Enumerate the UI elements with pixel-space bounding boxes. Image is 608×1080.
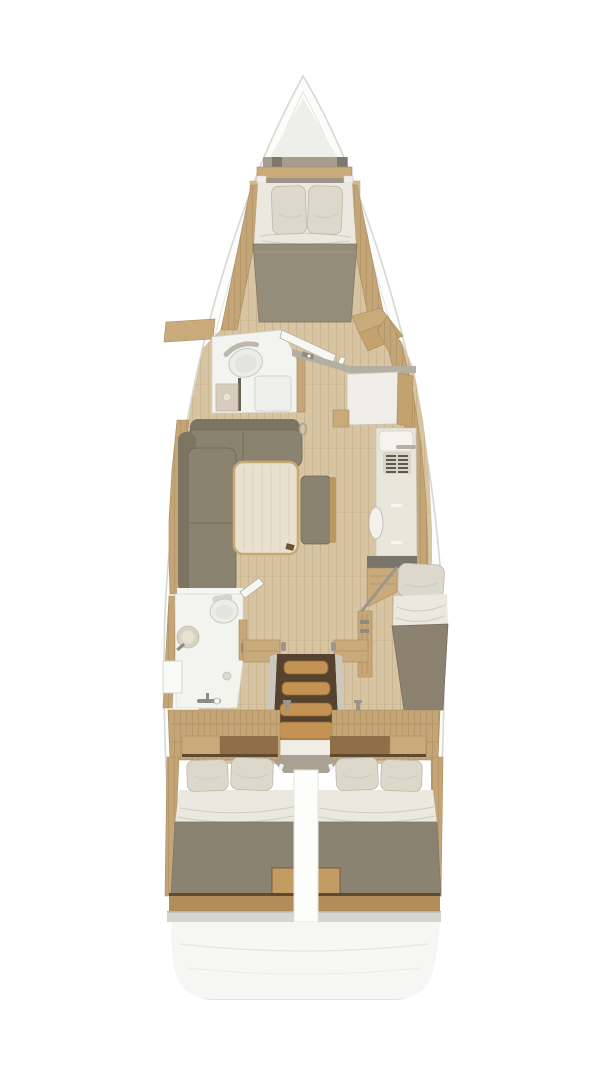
forward-pillow-right (307, 185, 343, 234)
rail-hinge-dot (308, 355, 311, 358)
starboard-footboard-edge (318, 893, 440, 896)
starboard-headboard-light (390, 736, 426, 756)
nav-cabinet-top (347, 372, 398, 425)
berth-trim-tab-right (344, 176, 353, 183)
vent-slat (398, 467, 408, 469)
port-footboard (169, 896, 294, 912)
vent-slat (386, 459, 396, 461)
port-pillow-outer (186, 759, 228, 791)
stern-deck (171, 922, 440, 999)
starboard-pillow-inner (335, 757, 378, 790)
stair-tread-1 (284, 661, 328, 674)
galley-round-sink (369, 507, 383, 539)
starboard-pillow-outer (380, 759, 422, 791)
vent-slat (398, 471, 408, 473)
yacht-floor-plan (0, 0, 608, 1080)
bow-shelf-tab-left (272, 157, 282, 167)
vent-slat (386, 455, 396, 457)
aft-sink-basin (182, 631, 195, 644)
forward-mattress (253, 244, 357, 322)
vent-slat (398, 459, 408, 461)
forward-berth (253, 176, 357, 322)
vent-slat (398, 463, 408, 465)
hull-shelf-box (163, 661, 182, 693)
floor-plan-canvas (0, 0, 608, 1080)
port-headboard-edge (182, 754, 278, 757)
forward-head-door-frame (297, 358, 305, 412)
shower-mixer-stub (206, 693, 209, 700)
port-seat-block (164, 319, 215, 342)
forward-pillow-left (271, 185, 307, 234)
sofa-seats-side (188, 448, 236, 593)
port-door-handle (285, 700, 289, 711)
starboard-door-handle (356, 700, 360, 711)
drawer-handle-upper (391, 504, 402, 507)
starboard-headboard-dark (330, 736, 390, 756)
vent-slat (386, 467, 396, 469)
vent-slat (398, 455, 408, 457)
starboard-mattress-step (318, 868, 340, 896)
shower-pan (255, 376, 291, 411)
port-headboard-light (182, 736, 220, 756)
port-headboard-dark (220, 736, 278, 756)
port-pillow-inner (230, 757, 273, 790)
port-mattress-step (272, 868, 294, 896)
shower-seam (238, 378, 241, 411)
bench-wood-rim (330, 477, 336, 543)
counter-handle-bar (396, 445, 416, 449)
starboard-footboard (318, 896, 440, 912)
berth-door-handle-1 (360, 620, 369, 624)
forward-sink-basin (223, 393, 231, 401)
bow-shelf-tab-right (337, 157, 347, 167)
starboard-cabinet-latch (331, 642, 336, 651)
stair-tread-2 (282, 682, 330, 695)
single-berth-pillow (397, 563, 445, 598)
port-footboard-edge (169, 893, 294, 896)
shower-drain (223, 672, 231, 680)
nav-cabinet-wood-strip (397, 373, 413, 427)
starboard-headboard-edge (330, 754, 426, 757)
stair-base-platform (276, 740, 336, 757)
port-cabinet-latch (281, 642, 286, 651)
vent-slat (386, 471, 396, 473)
galley-side-block (333, 410, 349, 427)
shower-knob (214, 698, 220, 704)
saloon-bench (301, 476, 331, 544)
drawer-handle-lower (391, 541, 402, 544)
stair-tread-4 (278, 722, 334, 739)
center-column (294, 770, 318, 922)
grab-rail-horizontal (350, 366, 416, 373)
vent-slat (386, 463, 396, 465)
berth-door-handle-2 (360, 629, 369, 633)
berth-trim-tab-left (257, 176, 266, 183)
